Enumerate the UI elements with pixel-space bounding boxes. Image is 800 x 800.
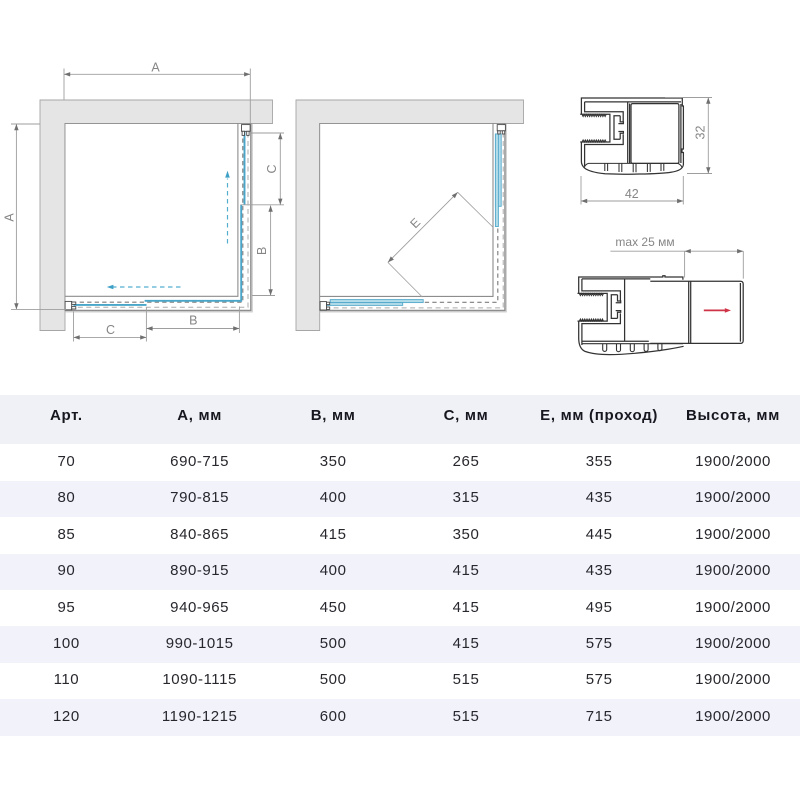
svg-text:C: C <box>106 323 115 337</box>
svg-text:B: B <box>255 247 269 255</box>
svg-text:32: 32 <box>694 126 708 140</box>
svg-text:B: B <box>189 314 197 328</box>
svg-text:C: C <box>265 164 279 173</box>
svg-text:A: A <box>151 60 160 74</box>
svg-text:max 25 мм: max 25 мм <box>615 235 674 249</box>
svg-text:42: 42 <box>625 187 639 201</box>
svg-text:A: A <box>2 213 16 222</box>
